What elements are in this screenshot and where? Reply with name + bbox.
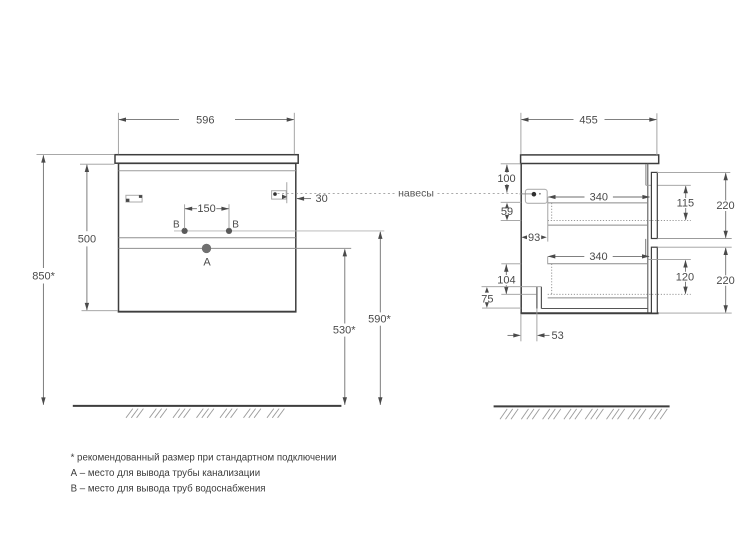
svg-text:А – место для вывода трубы кан: А – место для вывода трубы канализации <box>71 468 261 479</box>
svg-text:220: 220 <box>716 200 734 212</box>
svg-text:В – место для вывода труб водо: В – место для вывода труб водоснабжения <box>71 484 266 495</box>
svg-text:596: 596 <box>196 114 214 126</box>
svg-text:530*: 530* <box>333 325 356 337</box>
svg-text:93: 93 <box>528 232 540 244</box>
svg-text:340: 340 <box>590 192 608 204</box>
svg-text:A: A <box>203 256 211 268</box>
svg-text:590*: 590* <box>368 314 391 326</box>
svg-text:150: 150 <box>197 203 215 215</box>
svg-text:120: 120 <box>676 271 694 283</box>
svg-text:115: 115 <box>677 198 695 210</box>
svg-text:340: 340 <box>589 251 607 263</box>
svg-text:* рекомендованный размер при с: * рекомендованный размер при стандартном… <box>71 453 337 464</box>
svg-text:53: 53 <box>552 330 564 342</box>
svg-text:104: 104 <box>497 275 515 287</box>
svg-text:B: B <box>173 220 180 231</box>
svg-text:75: 75 <box>481 293 493 305</box>
svg-text:навесы: навесы <box>398 187 434 199</box>
svg-text:100: 100 <box>497 173 515 185</box>
svg-text:30: 30 <box>316 193 328 205</box>
svg-text:500: 500 <box>78 233 96 245</box>
svg-text:B: B <box>232 220 239 231</box>
svg-text:455: 455 <box>579 114 597 126</box>
svg-text:220: 220 <box>716 275 734 287</box>
svg-text:850*: 850* <box>32 270 55 282</box>
svg-text:59: 59 <box>501 206 513 218</box>
